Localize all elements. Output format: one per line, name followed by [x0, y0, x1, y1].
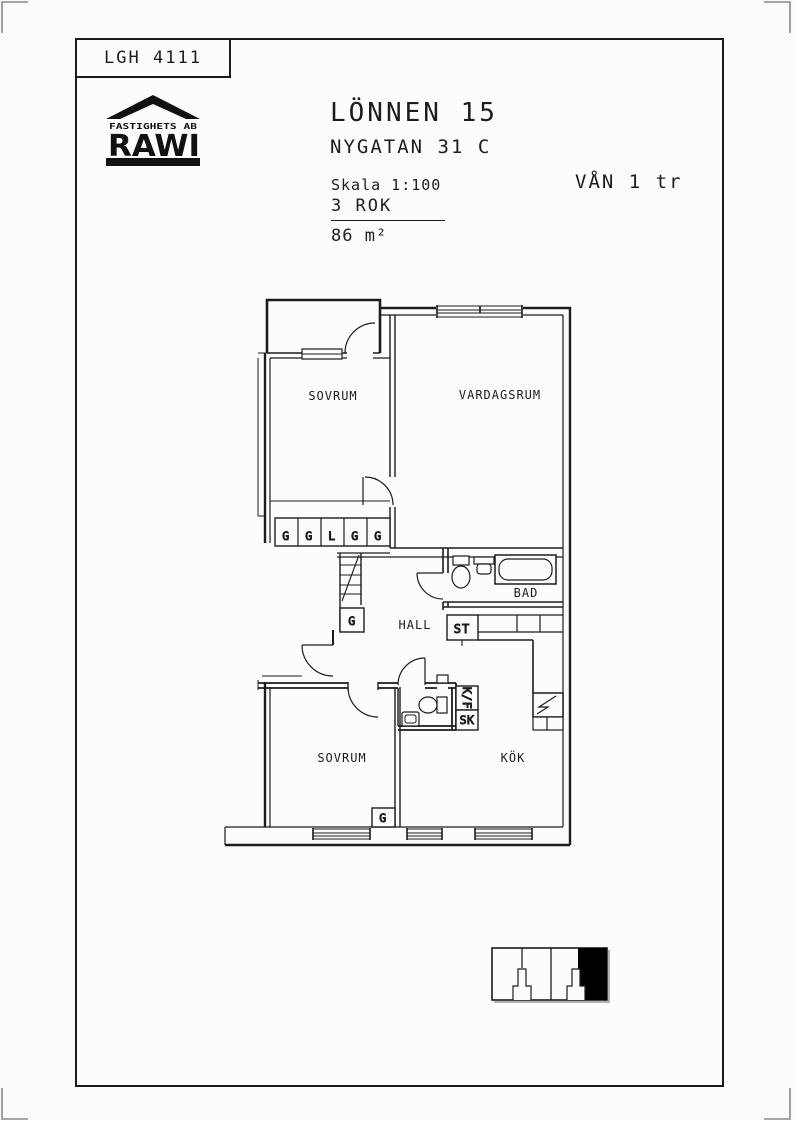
wardrobe-label: G [348, 614, 355, 628]
ventilation-shaft [533, 693, 563, 730]
fridge-freezer-label: K/F [460, 687, 474, 709]
window-sovrum-2 [312, 828, 371, 840]
wardrobe-label: G [379, 811, 386, 825]
bad-door [417, 573, 443, 599]
balcony-walls [267, 300, 380, 353]
balcony-door-arc [345, 323, 375, 353]
floor-plan: G G L G G G ST G [0, 0, 797, 1121]
wc-vent-duct [437, 675, 448, 683]
bathroom-fixtures [452, 555, 556, 588]
wardrobe-hall: G [340, 608, 364, 632]
drawing-sheet: LGH 4111 FASTIGHETS AB RAWI LÖNNEN 15 NY… [0, 0, 797, 1121]
wc-fixtures [402, 697, 447, 726]
bathtub-icon [495, 555, 556, 584]
building-footprint [492, 948, 609, 1002]
room-label-sovrum-2: SOVRUM [317, 751, 366, 765]
toilet-icon [452, 556, 470, 588]
wc-door [398, 658, 425, 685]
wc-sink-icon [402, 712, 419, 726]
sink-icon [474, 557, 494, 574]
room-label-vardagsrum: VARDAGSRUM [459, 388, 541, 402]
room-label-kok: KÖK [501, 749, 526, 765]
wardrobe-cell-label: G [305, 529, 312, 543]
wardrobe-cell-label: G [374, 529, 381, 543]
wardrobe-cell-label: G [282, 529, 289, 543]
st-label: ST [454, 622, 470, 636]
wardrobes: G G L G G G ST G [270, 501, 563, 827]
window-vardagsrum [436, 305, 523, 318]
hall-closet-band [478, 615, 563, 632]
room-label-bad: BAD [514, 586, 539, 600]
st-closet: ST [447, 615, 478, 646]
window-balcony [302, 349, 342, 359]
wc-toilet-icon [419, 697, 447, 713]
fridge-freezer-unit: K/F [456, 686, 478, 710]
room-label-sovrum-1: SOVRUM [308, 389, 357, 403]
wardrobe-cell-label: G [351, 529, 358, 543]
window-kok [474, 828, 533, 840]
room-label-hall: HALL [399, 618, 432, 632]
linen-closet-label: L [328, 529, 335, 543]
cupboard-label: SK [460, 713, 475, 727]
cupboard-unit: SK [456, 710, 478, 730]
entry-door [302, 645, 333, 676]
window-kok-left [406, 828, 443, 840]
sovrum2-door [348, 682, 378, 717]
wardrobe-sovrum2: G [372, 808, 395, 827]
wardrobe-row-sovrum1: G G L G G [275, 518, 390, 546]
